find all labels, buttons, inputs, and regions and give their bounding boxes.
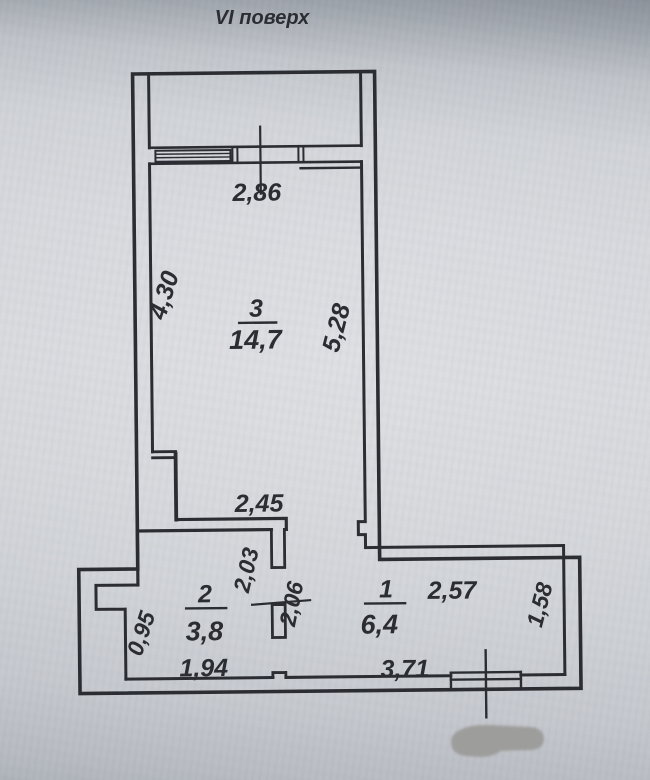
balcony-left-wall	[149, 74, 150, 148]
dim-room1-right: 1,58	[521, 580, 557, 630]
left-wall-step	[153, 452, 176, 458]
dim-room3-right: 5,28	[317, 301, 356, 355]
room2-number: 2	[197, 580, 212, 608]
window-pier-line	[301, 168, 362, 169]
room3-bottom-wall	[137, 518, 287, 585]
left-pier-wall	[176, 454, 177, 520]
room-number-underlines	[183, 321, 405, 608]
room1-right-wall	[564, 546, 565, 675]
room1-area: 6,4	[360, 609, 398, 639]
floor-title: VI поверх	[215, 7, 310, 29]
balcony-door-jambs	[232, 146, 303, 163]
floor-plan-photo: VI поверх	[0, 0, 650, 780]
balcony-right-wall	[361, 72, 362, 146]
balcony-window-band	[149, 146, 361, 170]
room2-area: 3,8	[185, 616, 223, 646]
room3-right-wall	[355, 160, 564, 548]
dim-room3-bottom: 2,45	[234, 489, 285, 518]
dim-partition-right: 2,06	[274, 579, 309, 629]
dim-room1-top: 2,57	[427, 576, 478, 605]
redaction-mark	[451, 725, 544, 757]
room1-number: 1	[379, 575, 393, 603]
dim-line-entrance	[486, 650, 487, 717]
dim-room2-bottom: 1,94	[179, 654, 228, 683]
dim-room3-width: 2,86	[231, 178, 282, 207]
plan-drawing: VI поверх	[0, 0, 650, 780]
dim-room1-bottom: 3,71	[380, 655, 429, 684]
dim-room2-niche: 0,95	[121, 607, 160, 659]
room3-area: 14,7	[229, 324, 284, 355]
walls	[74, 69, 581, 693]
room3-number: 3	[249, 295, 263, 323]
dim-partition-left: 2,03	[228, 545, 264, 596]
labels: 3 14,7 2 3,8 1 6,4 2,86 4,30 5,28 2,45 2…	[117, 176, 559, 687]
window-icon	[155, 150, 230, 162]
